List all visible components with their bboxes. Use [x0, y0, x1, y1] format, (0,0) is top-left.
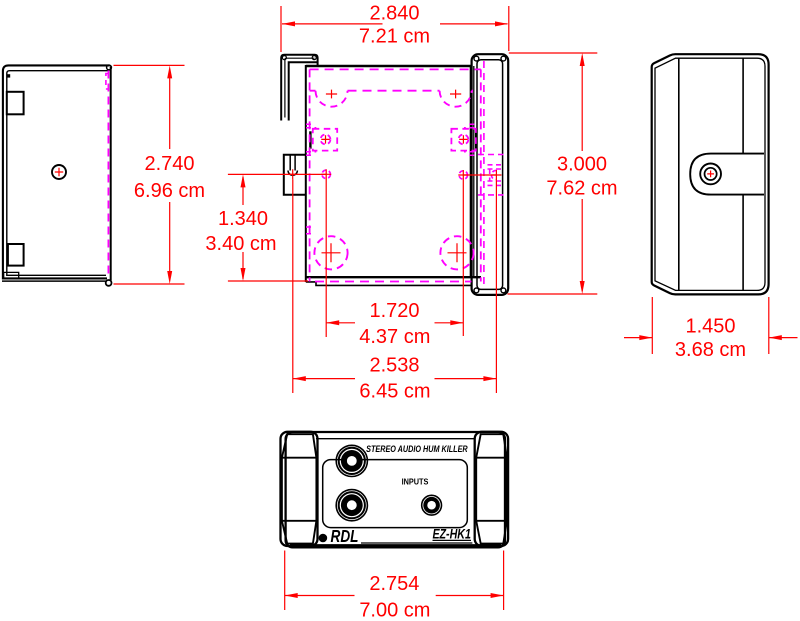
svg-text:6.45 cm: 6.45 cm — [359, 381, 430, 403]
svg-text:1.340: 1.340 — [218, 208, 268, 230]
svg-text:2.538: 2.538 — [369, 355, 419, 377]
svg-text:6.96 cm: 6.96 cm — [134, 180, 205, 202]
svg-text:1.720: 1.720 — [369, 300, 419, 322]
svg-text:2.840: 2.840 — [369, 3, 419, 25]
svg-text:3.68 cm: 3.68 cm — [675, 339, 746, 361]
svg-text:7.62 cm: 7.62 cm — [546, 178, 617, 200]
svg-text:2.754: 2.754 — [369, 573, 419, 595]
svg-text:2.740: 2.740 — [144, 153, 194, 175]
svg-text:7.00 cm: 7.00 cm — [359, 600, 430, 621]
svg-text:STEREO AUDIO HUM KILLER: STEREO AUDIO HUM KILLER — [366, 444, 468, 455]
svg-text:4.37 cm: 4.37 cm — [359, 326, 430, 348]
svg-text:1.450: 1.450 — [685, 316, 735, 338]
svg-text:3.40 cm: 3.40 cm — [205, 233, 276, 255]
svg-text:RDL: RDL — [331, 526, 359, 546]
svg-text:INPUTS: INPUTS — [402, 477, 429, 487]
svg-text:7.21 cm: 7.21 cm — [359, 26, 430, 48]
svg-text:3.000: 3.000 — [557, 154, 607, 176]
svg-text:EZ-HK1: EZ-HK1 — [432, 527, 471, 542]
